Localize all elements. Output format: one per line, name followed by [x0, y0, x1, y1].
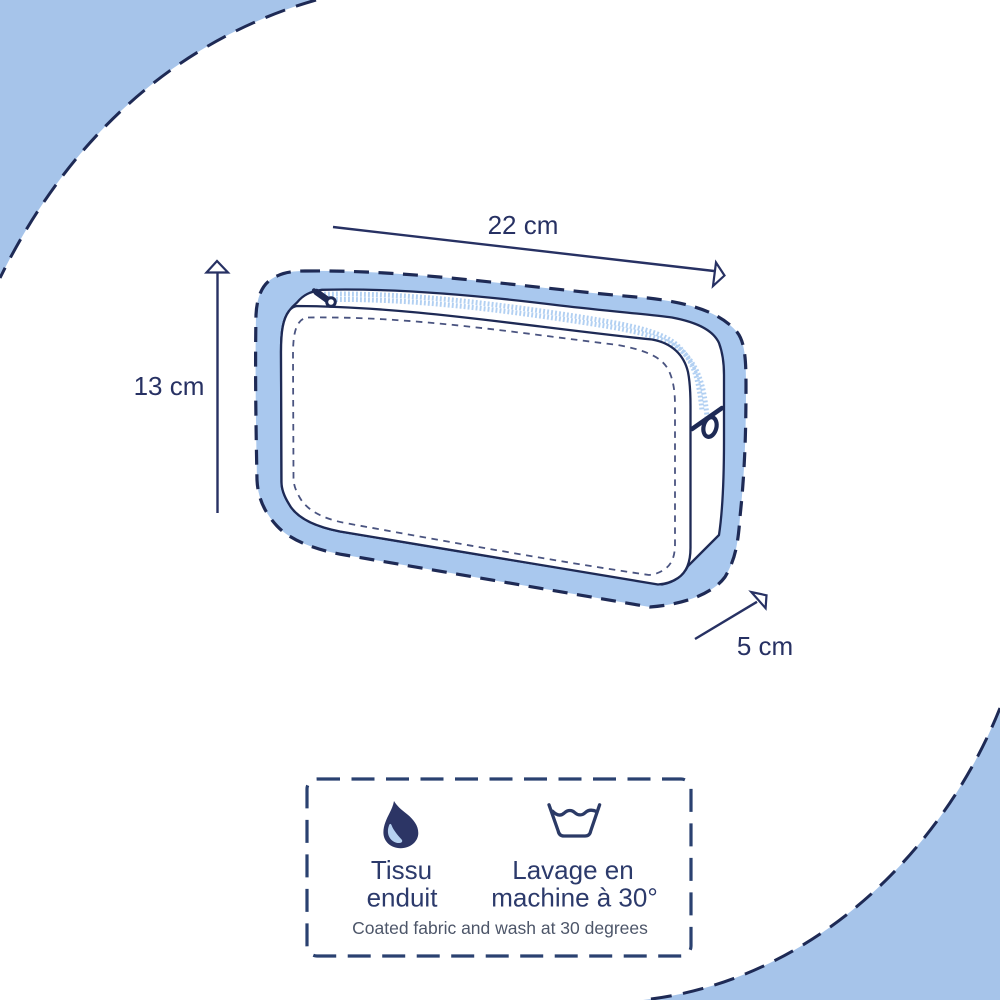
svg-text:enduit: enduit — [367, 883, 439, 913]
svg-text:machine à 30°: machine à 30° — [491, 883, 658, 913]
svg-text:13 cm: 13 cm — [134, 371, 205, 401]
svg-text:Tissu: Tissu — [371, 855, 432, 885]
svg-text:Coated fabric and wash at 30 d: Coated fabric and wash at 30 degrees — [352, 918, 648, 938]
svg-text:5 cm: 5 cm — [737, 631, 793, 661]
svg-text:Lavage en: Lavage en — [512, 855, 633, 885]
svg-text:22 cm: 22 cm — [488, 210, 559, 240]
